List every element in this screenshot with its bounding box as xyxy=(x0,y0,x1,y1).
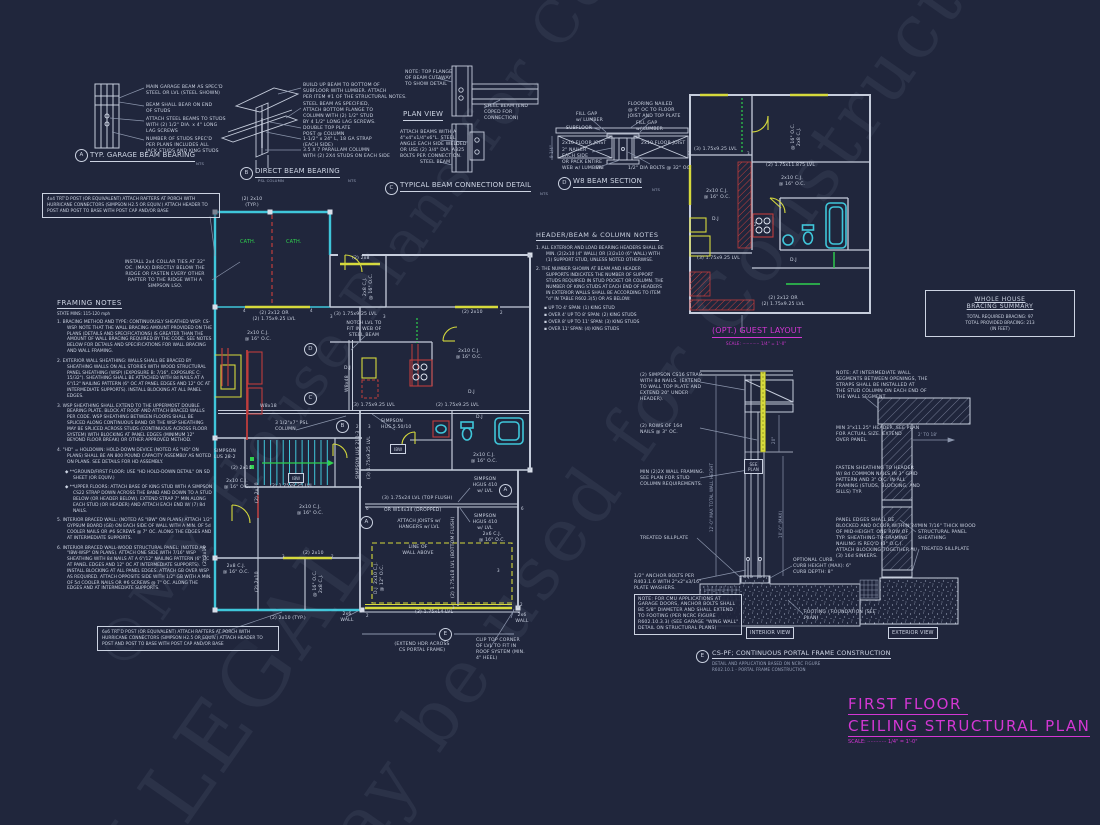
header-note-bullet: ▪ OVER 4' UP TO 8' SPAN: (2) KING STUDS xyxy=(536,313,664,319)
bracing-summary-title-2: BRACING SUMMARY xyxy=(930,303,1070,310)
framing-notes: FRAMING NOTES STATE MINS: 115-120 mph 1.… xyxy=(57,290,213,596)
detail-d-drawing xyxy=(552,116,688,166)
post-note-bottom: 6x6 TRT'D POST (OR EQUIVALENT) ATTACH RA… xyxy=(97,626,279,651)
framing-note-item: 4. "HD" = HOLDOWN: HOLD-DOWN DEVICE (NOT… xyxy=(57,448,213,465)
main-floor-plan xyxy=(200,210,533,649)
bracing-summary: WHOLE HOUSE BRACING SUMMARY TOTAL REQUIR… xyxy=(925,290,1075,337)
header-notes-title: HEADER/BEAM & COLUMN NOTES xyxy=(536,231,659,241)
sheet-title-line2: CEILING STRUCTURAL PLAN xyxy=(848,717,1090,737)
bracing-required: TOTAL REQUIRED BRACING: 97 xyxy=(930,315,1070,320)
header-beam-column-notes: HEADER/BEAM & COLUMN NOTES 1. ALL EXTERI… xyxy=(536,222,664,334)
header-note-bullet: ▪ OVER 8' UP TO 11' SPAN: (3) KING STUDS xyxy=(536,320,664,326)
framing-note-item: 5. INTERIOR BRACED WALL: (NOTED AS "IBW"… xyxy=(57,518,213,541)
framing-note-item: 2. EXTERIOR WALL SHEATHING: WALLS SHALL … xyxy=(57,359,213,400)
bracing-summary-title-1: WHOLE HOUSE xyxy=(930,296,1070,303)
framing-notes-title: FRAMING NOTES xyxy=(57,299,122,309)
bracing-provided: TOTAL PROVIDED BRACING: 213 xyxy=(930,321,1070,326)
header-note-item: 2. THE NUMBER SHOWN AT BEAM AND HEADER S… xyxy=(536,267,664,302)
framing-note-item: 3. WSP SHEATHING SHALL EXTEND TO THE UPP… xyxy=(57,404,213,445)
detail-a-drawing xyxy=(95,84,144,148)
sheet-scale: SCALE: ············ 1/4" = 1'-0" xyxy=(848,739,1090,745)
header-note-bullet: ▪ OVER 11' SPAN: (4) KING STUDS xyxy=(536,327,664,333)
detail-e-drawing xyxy=(697,371,970,626)
framing-note-item: 6. INTERIOR BRACED WALL-WOOD STRUCTURAL … xyxy=(57,546,213,593)
sheet-title-line1: FIRST FLOOR xyxy=(848,695,968,715)
title-block: FIRST FLOOR CEILING STRUCTURAL PLAN SCAL… xyxy=(848,694,1090,745)
detail-b-drawing xyxy=(222,88,301,172)
bracing-unit: (IN FEET) xyxy=(930,327,1070,332)
framing-note-bullet: ◆ **GROUND/FIRST FLOOR: USE "HD HOLD-DOW… xyxy=(57,470,213,482)
framing-note-item: 1. BRACING METHOD AND TYPE: CONTINUOUSLY… xyxy=(57,320,213,355)
post-note-top: 4x4 TRT'D POST (OR EQUIVALENT) ATTACH RA… xyxy=(42,193,220,218)
header-note-item: 1. ALL EXTERIOR AND LOAD BEARING HEADERS… xyxy=(536,246,664,263)
detail-c-drawing xyxy=(437,66,538,172)
header-note-bullet: ▪ UP TO 4' SPAN: (1) KING STUD xyxy=(536,306,664,312)
blueprint-sheet: ©MY House Plans for ConstructionsILLEGAL… xyxy=(0,0,1100,825)
framing-notes-subtitle: STATE MINS: 115-120 mph xyxy=(57,311,213,316)
framing-note-bullet: ◆ **UPPER FLOORS: ATTACH BASE OF KING ST… xyxy=(57,485,213,514)
guest-layout-plan xyxy=(690,95,870,332)
